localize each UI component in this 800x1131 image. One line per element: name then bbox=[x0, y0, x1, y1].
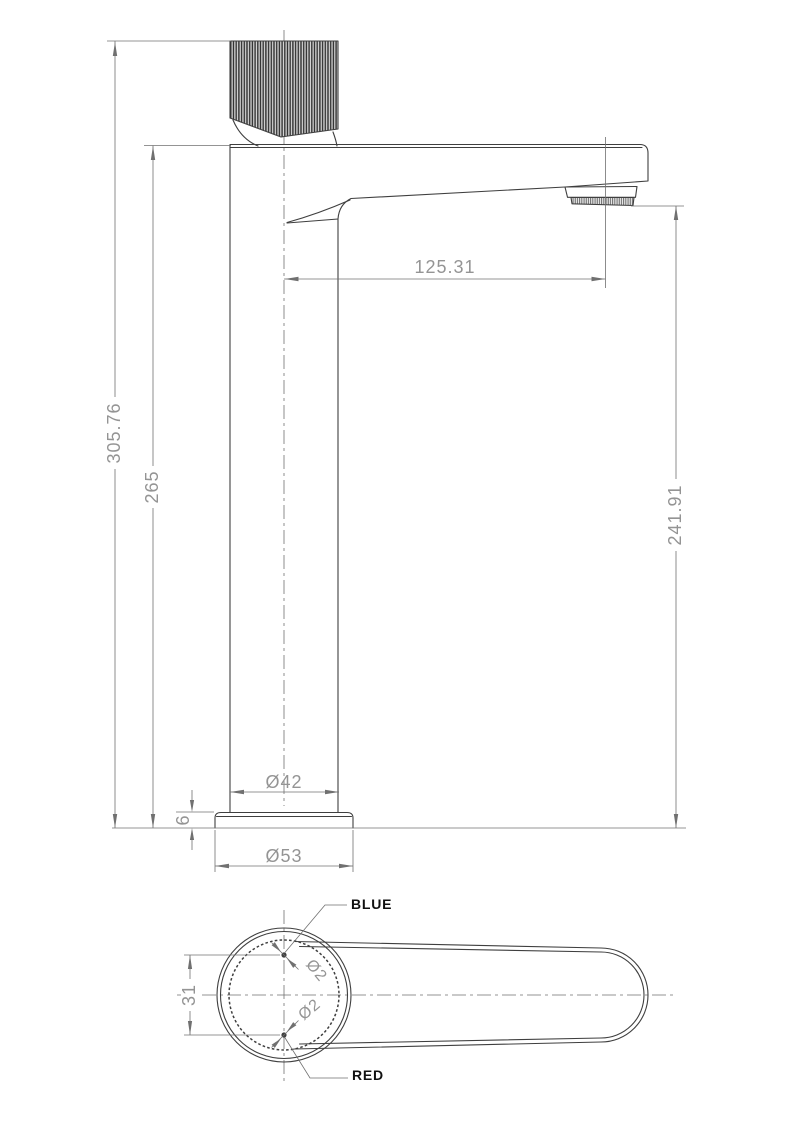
spout-underside-curve bbox=[287, 200, 350, 223]
dim-hole-spacing: 31 bbox=[179, 984, 199, 1006]
arrow-down-icon bbox=[674, 814, 678, 828]
arrow-left-icon bbox=[285, 277, 299, 281]
dim-body-diameter: Ø42 bbox=[265, 772, 302, 792]
arrow-up-icon bbox=[188, 955, 192, 969]
aerator-mesh bbox=[571, 198, 634, 206]
arrow-left-icon bbox=[215, 864, 229, 868]
faucet-technical-drawing: 305.76 265 241.91 125.31 Ø42 Ø53 bbox=[0, 0, 800, 1131]
hot-water-label: RED bbox=[352, 1067, 384, 1083]
arrow-down-icon bbox=[188, 1021, 192, 1035]
aerator-housing bbox=[565, 187, 637, 198]
arrow-down-icon bbox=[190, 800, 194, 812]
arrow-up-icon bbox=[151, 146, 155, 160]
handle-neck-right-curve bbox=[333, 132, 337, 146]
arrow-up-icon bbox=[190, 828, 194, 840]
arrow-left-icon bbox=[230, 790, 244, 794]
arrow-up-icon bbox=[113, 42, 117, 56]
dim-hole-bottom-diameter: Ø2 bbox=[295, 996, 324, 1024]
arrow-down-icon bbox=[151, 814, 155, 828]
dim-base-diameter: Ø53 bbox=[265, 846, 302, 866]
drawing-sheet: 305.76 265 241.91 125.31 Ø42 Ø53 bbox=[0, 0, 800, 1131]
dim-hole-top-diameter: Ø2 bbox=[302, 956, 330, 985]
front-view-dimensions: 305.76 265 241.91 125.31 Ø42 Ø53 bbox=[104, 41, 686, 872]
dim-outlet-height: 241.91 bbox=[665, 484, 685, 545]
handle-knob-knurled bbox=[230, 41, 338, 137]
arrow-right-icon bbox=[592, 277, 606, 281]
dim-total-height: 305.76 bbox=[104, 402, 124, 463]
cold-water-label: BLUE bbox=[351, 896, 392, 912]
dim-body-height: 265 bbox=[142, 470, 162, 503]
handle-top-view bbox=[177, 910, 675, 1082]
spout-underside-base-line bbox=[287, 219, 338, 223]
arrow-down-icon bbox=[113, 814, 117, 828]
dim-base-thickness: 6 bbox=[173, 814, 193, 825]
top-view-dimensions: 31 Ø2 Ø2 BLUE RED bbox=[179, 896, 393, 1083]
faucet-front-view bbox=[215, 30, 648, 828]
arrow-up-icon bbox=[674, 206, 678, 220]
arrow-right-icon bbox=[339, 864, 353, 868]
dim-spout-reach: 125.31 bbox=[414, 257, 475, 277]
body-spout-outline bbox=[230, 145, 648, 813]
arrow-right-icon bbox=[325, 790, 339, 794]
base-flange bbox=[215, 813, 353, 829]
